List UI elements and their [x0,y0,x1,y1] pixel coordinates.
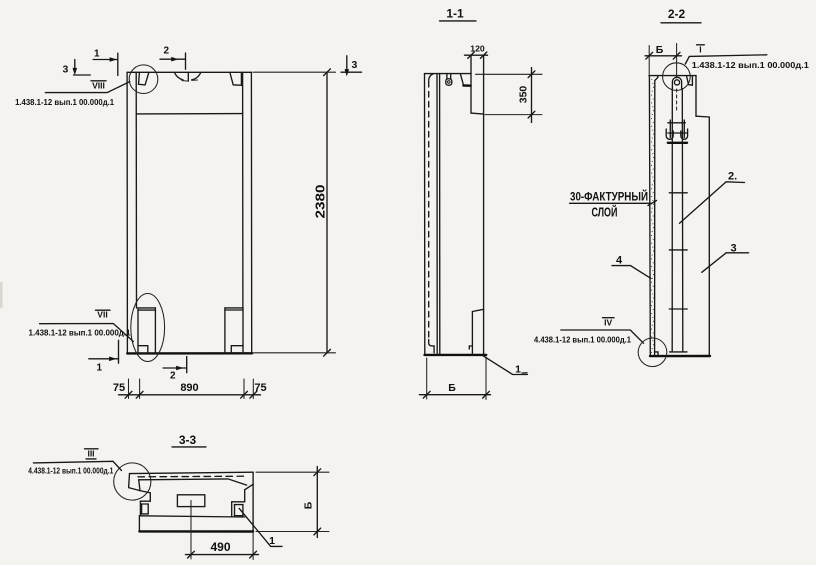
svg-text:Б: Б [303,501,315,509]
svg-text:2.: 2. [728,171,737,183]
svg-text:Б: Б [656,44,664,56]
svg-text:1: 1 [269,535,275,547]
svg-text:490: 490 [210,540,230,554]
svg-text:350: 350 [518,86,530,104]
svg-text:1-1: 1-1 [446,7,464,21]
svg-text:3: 3 [63,64,69,76]
svg-text:2: 2 [164,46,170,57]
svg-text:1: 1 [94,49,100,60]
svg-text:VIII: VIII [92,81,105,91]
svg-text:75: 75 [113,382,125,394]
svg-text:30-ФАКТУРНЫЙ: 30-ФАКТУРНЫЙ [570,189,648,204]
svg-text:75: 75 [254,382,266,394]
svg-text:1.438.1-12 вып.1 00.000д.1: 1.438.1-12 вып.1 00.000д.1 [15,98,115,107]
svg-text:120: 120 [470,45,485,54]
svg-text:VII: VII [97,310,107,320]
svg-text:2-2: 2-2 [668,7,686,21]
svg-text:1.438.1-12 вып.1 00.000д.1: 1.438.1-12 вып.1 00.000д.1 [29,329,132,338]
svg-text:СЛОЙ: СЛОЙ [592,205,618,220]
svg-text:890: 890 [180,382,198,394]
svg-text:4.438.1-12 вып.1 00.000д.1: 4.438.1-12 вып.1 00.000д.1 [28,467,113,476]
svg-text:1: 1 [515,364,521,376]
svg-text:1: 1 [97,363,103,374]
svg-text:Б: Б [448,382,456,394]
svg-text:4.438.1-12 вып.1 00.000д.1: 4.438.1-12 вып.1 00.000д.1 [534,336,632,345]
svg-text:I: I [699,45,701,55]
svg-text:III: III [87,449,94,459]
svg-text:2380: 2380 [314,184,328,218]
svg-text:3-3: 3-3 [179,433,197,447]
svg-text:1.438.1-12 вып.1 00.000д.1: 1.438.1-12 вып.1 00.000д.1 [692,61,810,70]
svg-text:3: 3 [352,59,358,71]
svg-text:IV: IV [604,318,612,328]
svg-text:2: 2 [170,371,176,382]
svg-text:4: 4 [616,255,623,267]
